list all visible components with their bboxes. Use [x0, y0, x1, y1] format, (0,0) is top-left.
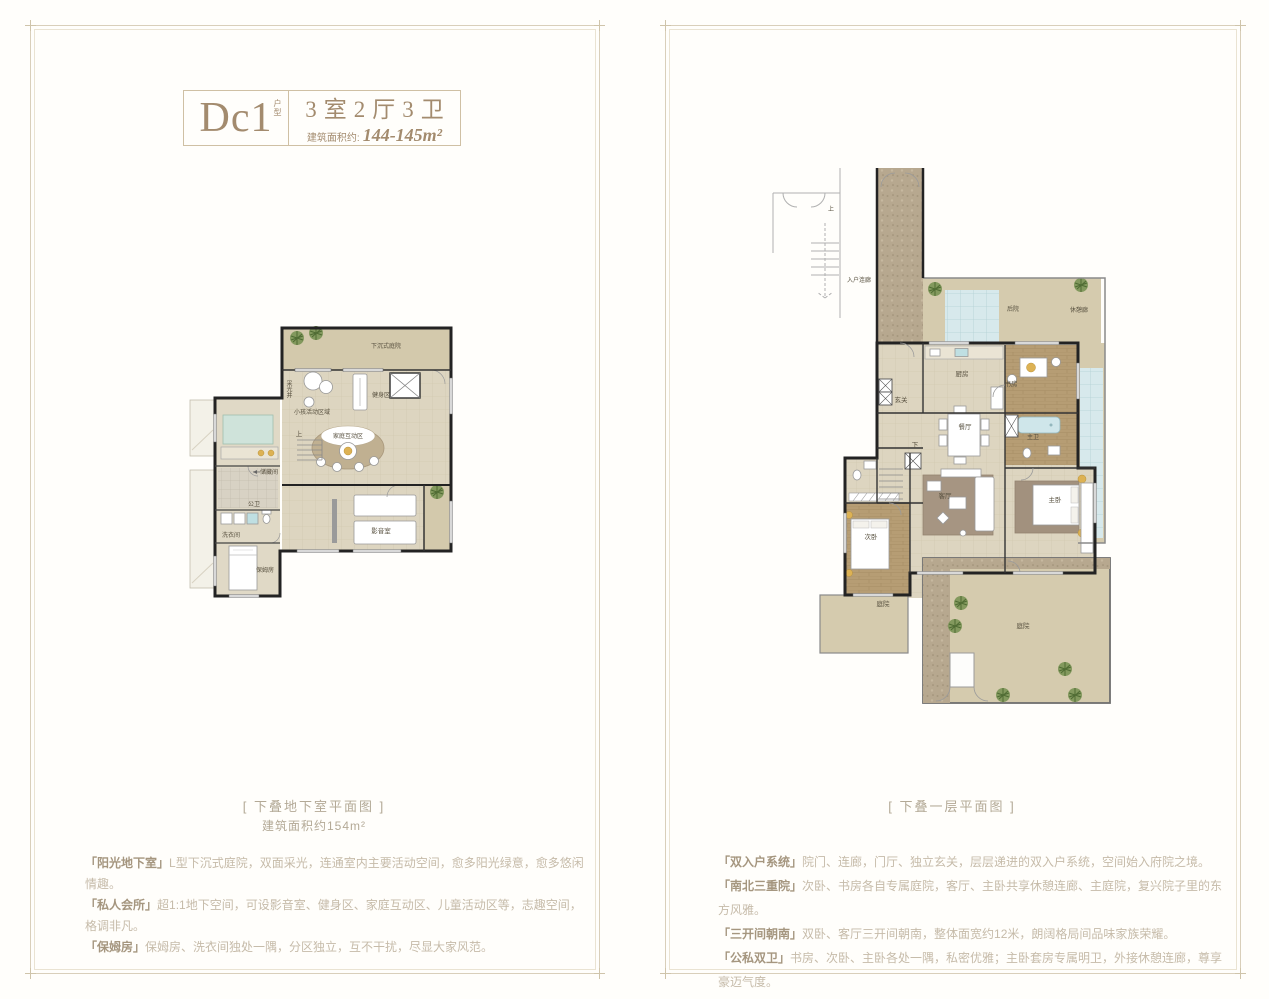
feature-line: 「南北三重院」次卧、书房各自专属庭院，客厅、主卧共享休憩连廊、主庭院，复兴院子里… [718, 874, 1233, 922]
corner-ornament [1235, 968, 1246, 979]
feature-line: 「阳光地下室」L型下沉式庭院，双面采光，连通室内主要活动空间，愈多阳光绿意，愈多… [85, 853, 585, 895]
unit-area-line: 建筑面积约: 144-145m² [307, 125, 442, 146]
label-backyard: 后院 [1007, 305, 1019, 313]
label-dining: 餐厅 [959, 422, 973, 431]
unit-code-suffix: 户型 [272, 99, 283, 117]
label-gym: 健身区 [372, 391, 390, 399]
basement-floorplan: 下沉式庭院 健身区 小孩活动区域 家庭互动区 上 储藏间 公卫 洗衣间 保姆房 … [185, 318, 465, 618]
label-master-bedroom: 主卧 [1049, 495, 1063, 504]
label-main-courtyard: 庭院 [1017, 621, 1031, 630]
label-cinema: 影音室 [371, 526, 391, 535]
label-master-bath: 主卫 [1027, 433, 1039, 441]
label-laundry: 洗衣间 [222, 531, 240, 539]
label-family-zone: 家庭互动区 [333, 432, 363, 440]
first-floor-feature-list: 「双入户系统」院门、连廊，门厅、独立玄关，层层递进的双入户系统，空间始入府院之境… [718, 850, 1233, 994]
corner-ornament [660, 20, 671, 31]
basement-feature-list: 「阳光地下室」L型下沉式庭院，双面采光，连通室内主要活动空间，愈多阳光绿意，愈多… [85, 853, 585, 958]
feature-line: 「公私双卫」书房、次卧、主卧各处一隅，私密优雅；主卧套房专属明卫，外接休憩连廊，… [718, 946, 1233, 994]
unit-area-label: 建筑面积约: [307, 129, 360, 144]
corner-ornament [660, 968, 671, 979]
corner-ornament [25, 20, 36, 31]
label-foyer: 玄关 [895, 395, 909, 404]
label-kids-zone: 小孩活动区域 [294, 408, 330, 416]
feature-line: 「双入户系统」院门、连廊，门厅、独立玄关，层层递进的双入户系统，空间始入府院之境… [718, 850, 1233, 874]
label-stairs-up: 上 [828, 205, 834, 213]
unit-rooms: 3室2厅3卫 [305, 90, 451, 124]
label-entry-corridor: 入户连廊 [847, 276, 871, 284]
basement-area-caption: 建筑面积约154m² [30, 817, 598, 834]
label-stairs-down: 下 [912, 441, 919, 449]
feature-tag: 「私人会所」 [85, 898, 157, 912]
feature-tag: 「阳光地下室」 [85, 856, 169, 870]
basement-graphics [190, 326, 453, 598]
unit-title-block: Dc1 户型 3室2厅3卫 建筑面积约: 144-145m² [183, 90, 461, 146]
label-second-bedroom: 次卧 [865, 532, 879, 541]
label-kitchen: 厨房 [956, 369, 969, 378]
feature-text: 双卧、客厅三开间朝南，整体面宽约12米，朗阔格局间品味家族荣耀。 [802, 927, 1175, 941]
label-nanny-room: 保姆房 [256, 566, 274, 574]
label-living: 客厅 [939, 491, 953, 500]
feature-tag: 「公私双卫」 [718, 951, 790, 965]
feature-line: 「保姆房」保姆房、洗衣间独处一隅，分区独立，互不干扰，尽显大家风范。 [85, 937, 585, 958]
first-floor-caption: [ 下叠一层平面图 ] [665, 796, 1239, 815]
label-study: 书房 [1005, 379, 1018, 388]
label-guest-bath: 公卫 [248, 501, 260, 508]
feature-tag: 「南北三重院」 [718, 879, 802, 893]
feature-text: 书房、次卧、主卧各处一隅，私密优雅；主卧套房专属明卫，外接休憩连廊，尊享豪迈气度… [718, 951, 1222, 989]
feature-line: 「私人会所」超1:1地下空间，可设影音室、健身区、家庭互动区、儿童活动区等，志趣… [85, 895, 585, 937]
corner-ornament [25, 968, 36, 979]
unit-area-value: 144-145m² [363, 125, 442, 146]
corner-ornament [594, 968, 605, 979]
label-storage: 储藏间 [260, 468, 278, 476]
label-lightwell: 采光井 [285, 379, 292, 399]
feature-text: 保姆房、洗衣间独处一隅，分区独立，互不干扰，尽显大家风范。 [145, 940, 493, 954]
feature-tag: 「双入户系统」 [718, 855, 802, 869]
unit-code-cell: Dc1 户型 [184, 91, 289, 145]
first-floor-graphics [773, 168, 1110, 703]
feature-tag: 「三开间朝南」 [718, 927, 802, 941]
corner-ornament [1235, 20, 1246, 31]
label-small-courtyard: 庭院 [877, 599, 891, 608]
first-floor-floorplan: 上 入户连廊 后院 休憩廊 厨房 书房 玄关 餐厅 主卫 下 客厅 主卧 次卧 … [765, 163, 1115, 713]
label-sunken-courtyard: 下沉式庭院 [371, 342, 401, 350]
feature-text: 院门、连廊，门厅、独立玄关，层层递进的双入户系统，空间始入府院之境。 [802, 855, 1210, 869]
label-stairs-up: 上 [296, 429, 303, 438]
feature-text: 超1:1地下空间，可设影音室、健身区、家庭互动区、儿童活动区等，志趣空间，格调非… [85, 898, 582, 933]
feature-tag: 「保姆房」 [85, 940, 145, 954]
brochure-page: { "title": { "code": "Dc1", "code_suffix… [0, 0, 1269, 999]
feature-line: 「三开间朝南」双卧、客厅三开间朝南，整体面宽约12米，朗阔格局间品味家族荣耀。 [718, 922, 1233, 946]
unit-code: Dc1 [200, 97, 273, 139]
unit-info-cell: 3室2厅3卫 建筑面积约: 144-145m² [289, 91, 460, 145]
corner-ornament [594, 20, 605, 31]
basement-caption: [ 下叠地下室平面图 ] [30, 796, 598, 815]
label-rest-corridor: 休憩廊 [1070, 306, 1088, 314]
